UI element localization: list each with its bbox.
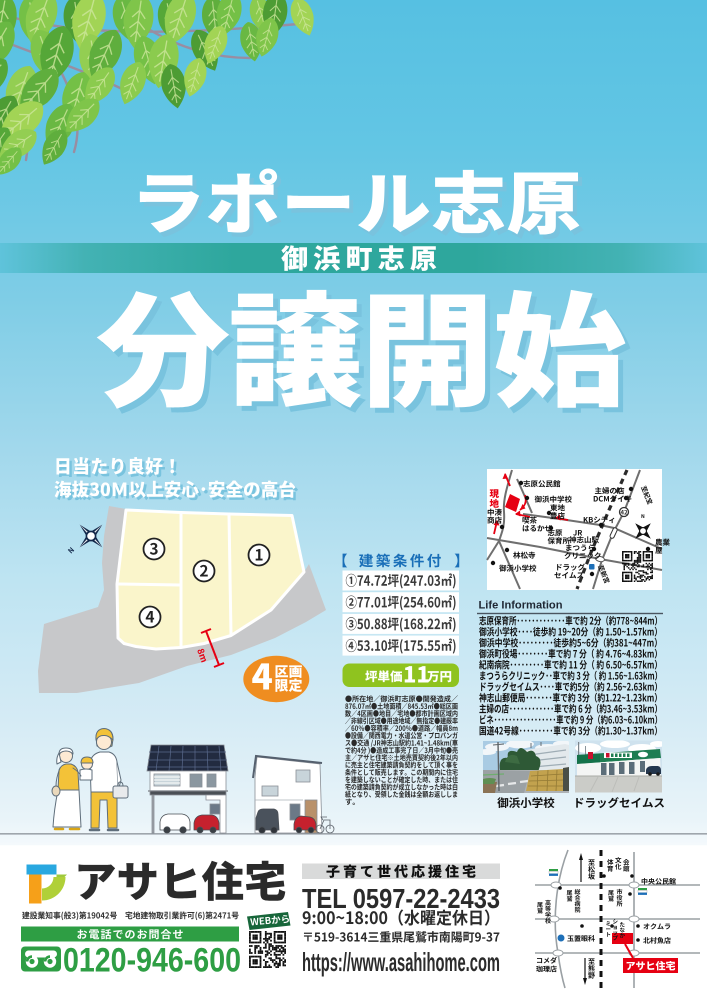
svg-text:https://www.asahihome.com: https://www.asahihome.com — [302, 947, 500, 977]
svg-text:Life Information: Life Information — [479, 600, 563, 612]
svg-text:0120-946-600: 0120-946-600 — [63, 942, 241, 980]
svg-text:TEL 0597-22-2433: TEL 0597-22-2433 — [302, 883, 500, 914]
